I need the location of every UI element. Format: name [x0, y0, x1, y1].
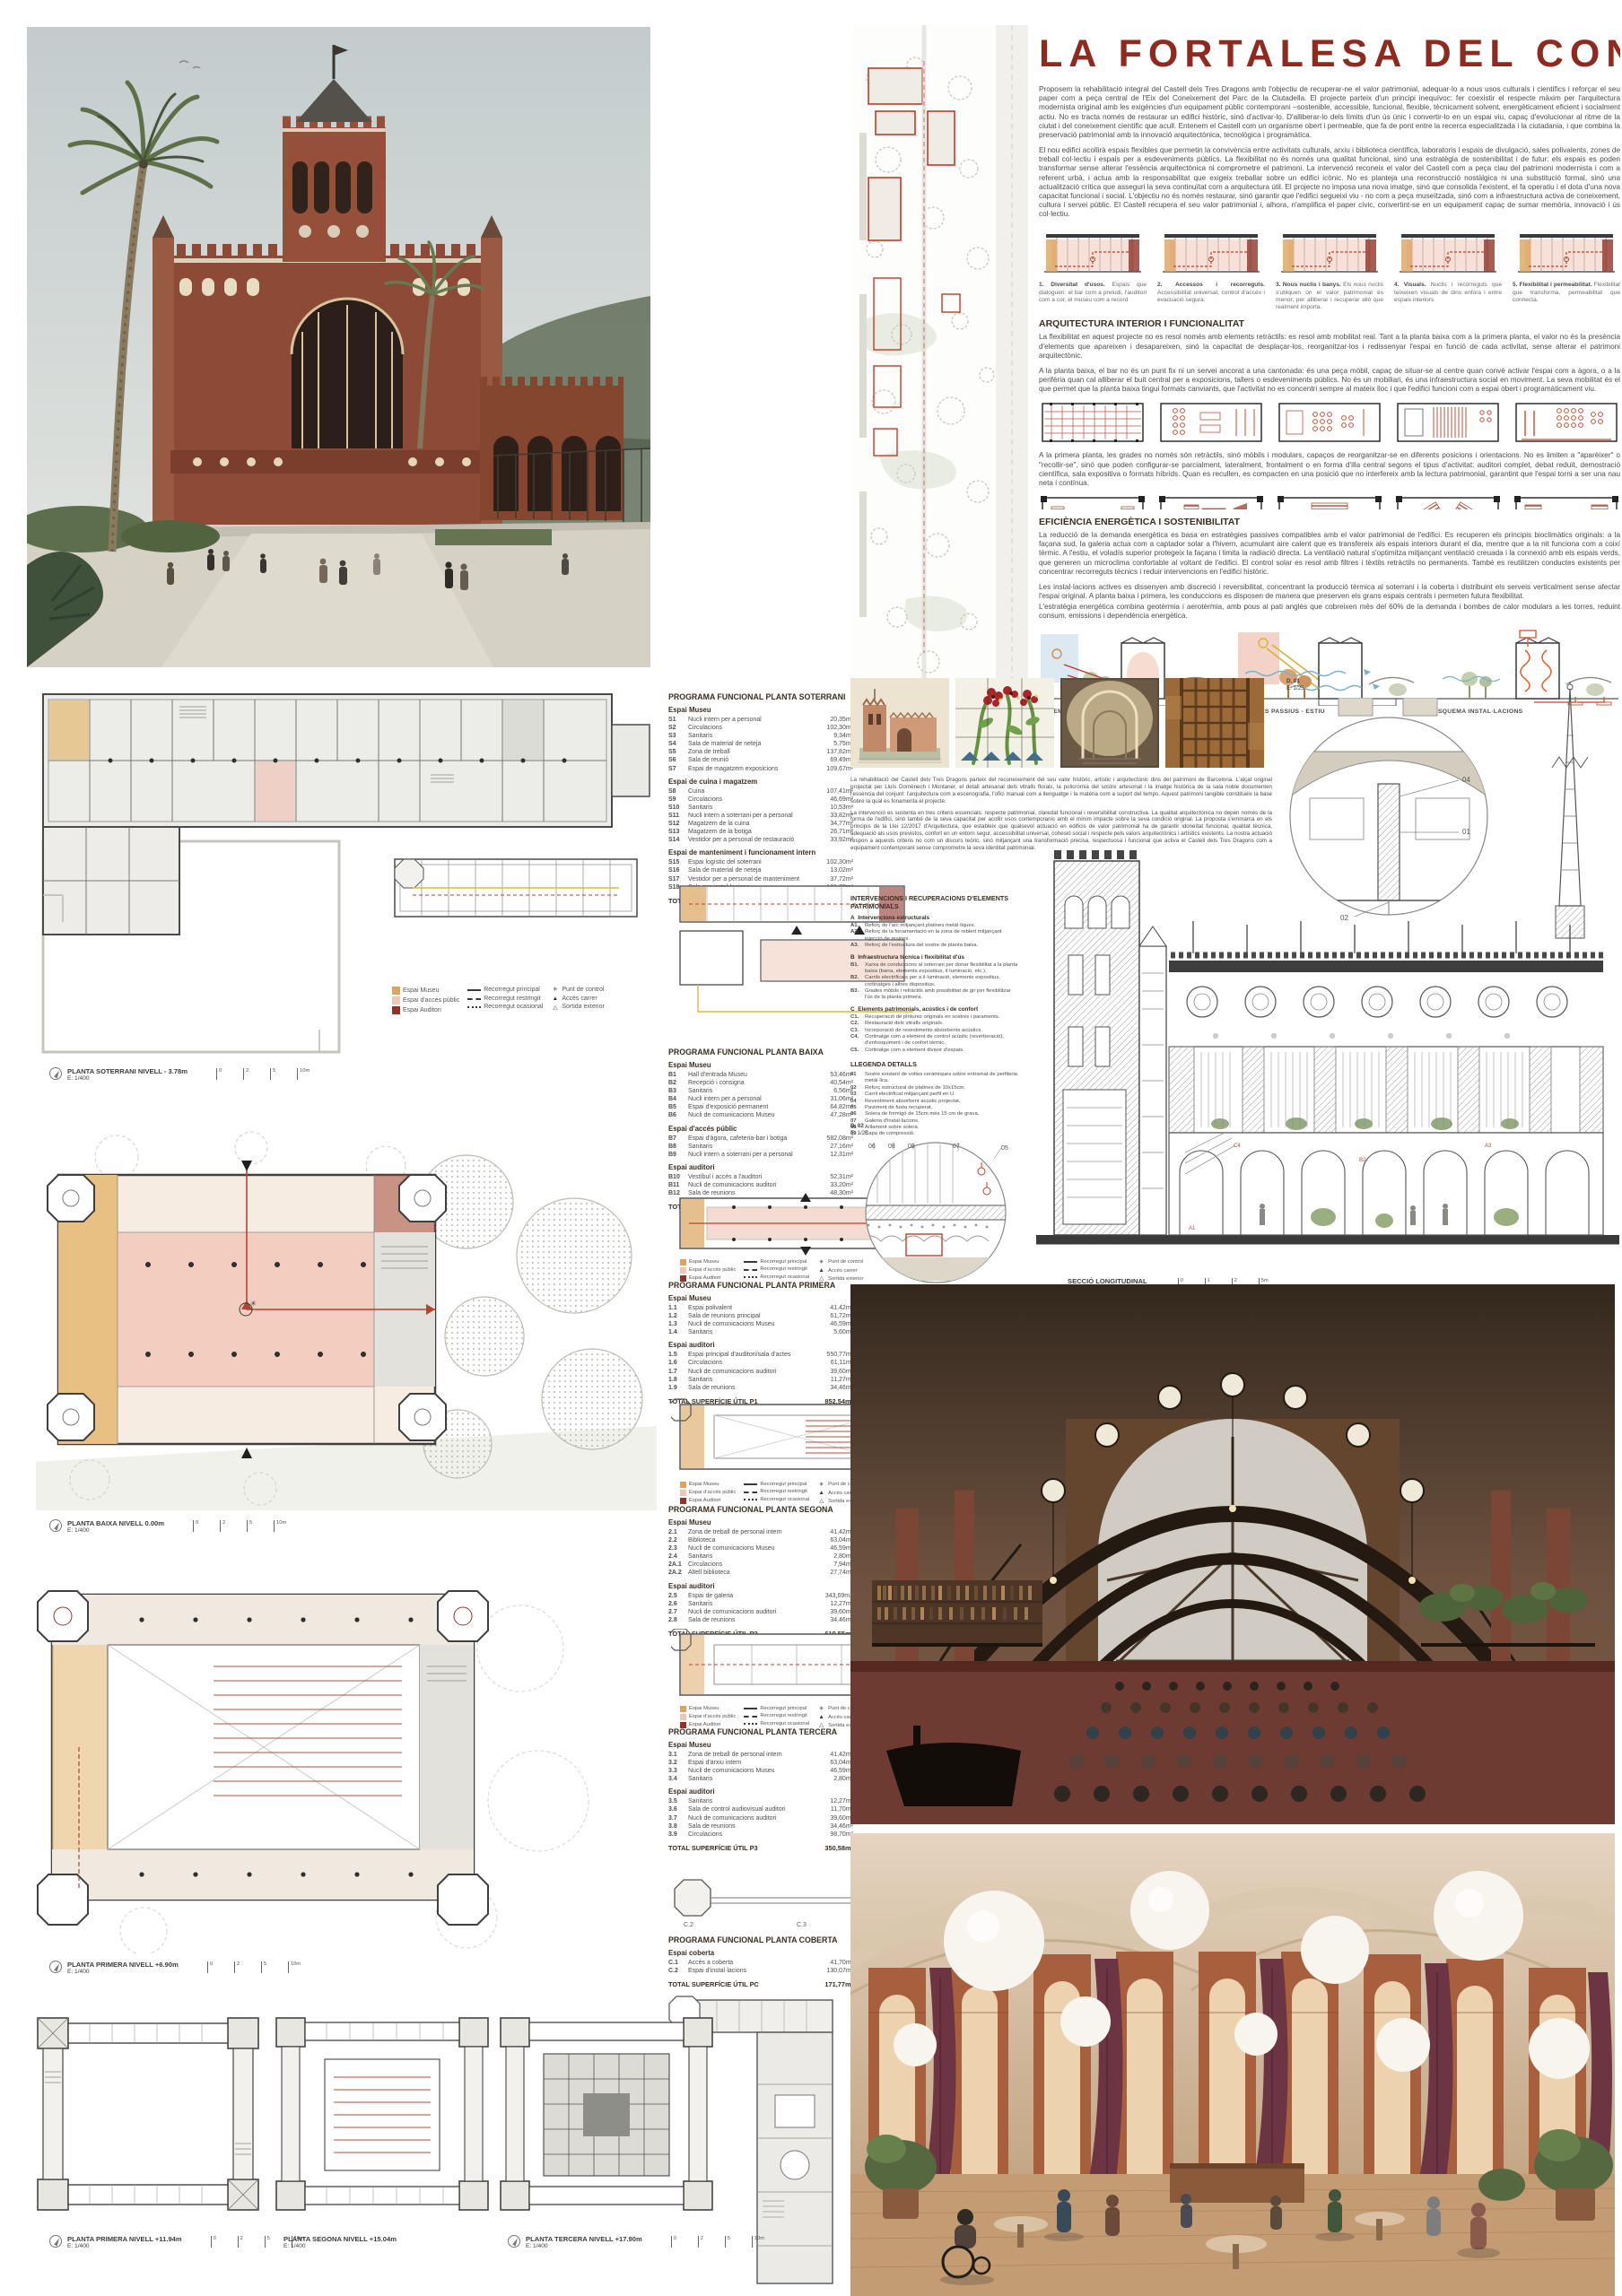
- program-row: 2.3Nucli de comunicacions Museu46,59m²: [668, 1544, 853, 1552]
- section-heading-eficiencia: EFICIÈNCIA ENERGÈTICA I SOSTENIBILITAT: [1039, 517, 1620, 527]
- program-row: 2.5Espai de galeria343,69m2: [668, 1592, 853, 1600]
- arquitectura-paragraph-3: A la primera planta, les grades no només…: [1039, 451, 1620, 488]
- scale-bar: 02510m: [193, 1520, 301, 1532]
- program-row: B1Hall d'entrada Museu53,46m²: [668, 1071, 853, 1079]
- scale-bar: 02510m: [207, 1961, 315, 1973]
- intervencio-item: B2.Carrils electrificats per a il·lumina…: [850, 975, 1019, 988]
- section-sketch-icon: [1157, 225, 1265, 279]
- legend-symbol-item: △Sortida exterior: [551, 1004, 604, 1011]
- legend-space-item: Espai Auditori: [392, 1006, 459, 1014]
- concept-diagrams-row: 1. Diversitat d'usos. Espais que dialogu…: [1039, 225, 1620, 311]
- plan-legend: Espai MuseuEspai d'accés públicEspai Aud…: [680, 1259, 863, 1282]
- svg-text:C.3: C.3: [797, 1922, 807, 1928]
- route-line-icon: [467, 1006, 481, 1008]
- program-row: B10Vestíbul i accés a l'auditori52,31m²: [668, 1173, 853, 1181]
- concept-diagram: 5. Flexibilitat i permeabilitat. Flexibi…: [1513, 225, 1620, 311]
- concept-caption: 3. Nous nuclis i banys. Els nous nuclis …: [1276, 282, 1383, 311]
- program-row: 2A.1Circulacions7,94m²: [668, 1561, 853, 1569]
- interior-render-cafe: [850, 1833, 1615, 2296]
- svg-text:05: 05: [1001, 1145, 1008, 1152]
- detail-d01-label: D. 01E: 1/25: [1286, 678, 1304, 692]
- color-chip: [392, 987, 400, 995]
- program-row: 3.7Nucli de comunicacions auditori39,60m…: [668, 1814, 853, 1822]
- legend-space-item: Espai Museu: [392, 987, 459, 995]
- route-line-icon: [467, 998, 481, 1000]
- legend-route-item: Recorregut restringit: [467, 996, 543, 1003]
- north-arrow-icon: [49, 1067, 62, 1080]
- program-row: 3.2Espai d'arxiu intern63,04m²: [668, 1759, 853, 1767]
- north-arrow-icon: [49, 1961, 62, 1973]
- scale-bar: 02510m: [216, 1068, 324, 1080]
- ground-floor-config-diagrams: [1039, 400, 1620, 445]
- program-row: 1.6Circulacions61,11m²: [668, 1359, 853, 1367]
- program-row: 1.1Espai polivalent41,42m²: [668, 1304, 853, 1312]
- program-row: 1.7Nucli de comunicacions auditori39,60m…: [668, 1368, 853, 1376]
- program-row: 2.8Sala de reunions34,46m²: [668, 1616, 853, 1624]
- plan-label-nivell-1790: PLANTA TERCERA NIVELL +17.90mE: 1/400 02…: [508, 2235, 779, 2249]
- llegenda-item: 01Sostre existent de voltes ceràmiques s…: [850, 1072, 1019, 1085]
- program-row: 1.2Sala de reunions principal61,72m²: [668, 1312, 853, 1320]
- page-title: LA FORTALESA DEL CONEIXEMENT: [1039, 32, 1620, 76]
- concept-caption: 5. Flexibilitat i permeabilitat. Flexibi…: [1513, 282, 1620, 304]
- program-row: 3.5Sanitaris12,27m²: [668, 1797, 853, 1805]
- arquitectura-paragraph-1: La flexibilitat en aquest projecte no es…: [1039, 333, 1620, 361]
- intervencio-item: B1.Xarxa de conduccions al soterrani per…: [850, 962, 1019, 976]
- concept-diagram: 1. Diversitat d'usos. Espais que dialogu…: [1039, 225, 1147, 311]
- program-row: B5Espai d'exposició permanent64,82m²: [668, 1103, 853, 1111]
- program-row: 1.3Nucli de comunicacions Museu46,59m²: [668, 1320, 853, 1328]
- program-row: C.2Espai d'instal·lacions130,07m²: [668, 1967, 853, 1975]
- intervencions-list: INTERVENCIONS I RECUPERACIONS D'ELEMENTS…: [850, 888, 1019, 1138]
- program-row: 2.7Nucli de comunicacions auditori39,60m…: [668, 1608, 853, 1616]
- svg-text:07: 07: [953, 1144, 960, 1150]
- site-plan-drawing: [852, 25, 1028, 684]
- plan-label-nivell-1194: PLANTA PRIMERA NIVELL +11.94mE: 1/400 02…: [49, 2235, 318, 2249]
- legend-symbol-item: ▲Accés carrer: [551, 996, 604, 1003]
- program-row: 2.2Biblioteca63,04m²: [668, 1536, 853, 1544]
- intervencio-item: C1.Recuperació de pintures originals en …: [850, 1014, 1019, 1021]
- concept-diagram: 3. Nous nuclis i banys. Els nous nuclis …: [1276, 225, 1383, 311]
- program-row: 3.3Nucli de comunicacions Museu46,59m²: [668, 1767, 853, 1775]
- color-chip: [392, 1006, 400, 1014]
- intervencio-item: C2.Restauració dels vitralls originals.: [850, 1021, 1019, 1027]
- plan-legend: Espai MuseuEspai d'accés públicEspai Aud…: [680, 1706, 863, 1728]
- plan-primera-drawing: [36, 1568, 592, 1953]
- llegenda-item: 08Aïllament sobre solera.: [850, 1125, 1019, 1131]
- program-row: B6Nucli de comunicacions Museu47,28m²: [668, 1111, 853, 1119]
- svg-text:08: 08: [888, 1144, 895, 1150]
- interior-render-cafe-drawing: [850, 1833, 1615, 2296]
- program-row: S15Espai logístic del soterrani102,30m²: [668, 858, 853, 866]
- program-row: S1Nucli intern per a personal20,35m²: [668, 716, 853, 724]
- north-arrow-icon: [508, 2235, 520, 2248]
- program-table-baixa: PROGRAMA FUNCIONAL PLANTA BAIXA Espai Mu…: [668, 1048, 853, 1211]
- concept-caption: 1. Diversitat d'usos. Espais que dialogu…: [1039, 282, 1147, 304]
- historic-elevation-watercolor: [850, 678, 949, 768]
- svg-text:C.2: C.2: [684, 1922, 693, 1928]
- svg-text:09: 09: [908, 1144, 915, 1150]
- legend-symbol-icon: ✳: [551, 987, 559, 993]
- north-arrow-icon: [49, 1519, 62, 1532]
- llegenda-item: 09Capa de compressió.: [850, 1131, 1019, 1137]
- svg-text:✳: ✳: [250, 1300, 257, 1308]
- llegenda-item: 07Galeria d'instal·lacions.: [850, 1118, 1019, 1125]
- program-row: B8Sanitaris27,16m²: [668, 1143, 853, 1151]
- section-heading-arquitectura: ARQUITECTURA INTERIOR I FUNCIONALITAT: [1039, 318, 1620, 329]
- plan-label-soterrani: PLANTA SOTERRANI NIVELL - 3.78mE: 1/400 …: [49, 1067, 324, 1082]
- plan-legend: Espai MuseuEspai d'accés públicEspai Aud…: [392, 987, 605, 1014]
- program-table-soterrani: PROGRAMA FUNCIONAL PLANTA SOTERRANI Espa…: [668, 692, 853, 905]
- intervencio-item: A3.Reforç de l'estructura del sostre de …: [850, 943, 1019, 949]
- program-table-primera: PROGRAMA FUNCIONAL PLANTA PRIMERA Espai …: [668, 1281, 853, 1405]
- program-row: B11Nucli de comunicacions auditori33,20m…: [668, 1181, 853, 1189]
- program-row: S5Zona de treball137,82m²: [668, 748, 853, 756]
- program-row: S10Sanitaris10,53m²: [668, 804, 853, 812]
- detail-d02-label: D. 02E: 1/25: [850, 1123, 868, 1137]
- program-row: S14Vestidor per a personal de restauraci…: [668, 836, 853, 844]
- program-table-segona: PROGRAMA FUNCIONAL PLANTA SEGONA Espai M…: [668, 1505, 853, 1638]
- plan-label-nivell-1504: PLANTA SEGONA NIVELL +15.04mE: 1/400: [283, 2235, 397, 2249]
- competition-board: LA FORTALESA DEL CONEIXEMENT Proposem la…: [0, 0, 1622, 2296]
- llegenda-item: 05Paviment de fusta recuperat.: [850, 1105, 1019, 1111]
- concept-caption: 2. Accessos i recorreguts. Accessibilita…: [1157, 282, 1265, 304]
- program-row: 2.4Sanitaris2,80m²: [668, 1552, 853, 1561]
- concept-diagram: 4. Visuals. Nuclis i recorreguts que tei…: [1394, 225, 1502, 311]
- plan-label-primera: PLANTA PRIMERA NIVELL +6.90mE: 1/400 025…: [49, 1961, 315, 1975]
- program-row: S7Espai de magatzem exposicions109,67m²: [668, 765, 853, 773]
- program-row: S9Circulacions46,69m²: [668, 796, 853, 804]
- main-text-column: LA FORTALESA DEL CONEIXEMENT Proposem la…: [1039, 32, 1620, 683]
- legend-symbol-icon: △: [551, 1004, 559, 1011]
- program-table-tercera: PROGRAMA FUNCIONAL PLANTA TERCERA Espai …: [668, 1727, 853, 1852]
- color-chip: [392, 996, 400, 1004]
- program-row: 3.4Sanitaris2,80m²: [668, 1775, 853, 1783]
- section-sketch-icon: [1039, 225, 1147, 279]
- legend-space-item: Espai d'accés públic: [392, 996, 459, 1004]
- intervencio-item: A2.Reforç de la fonamentació en la zona …: [850, 929, 1019, 943]
- interior-render-auditorium-drawing: [850, 1284, 1615, 1824]
- program-row: B3Sanitaris6,56m²: [668, 1087, 853, 1095]
- llegenda-item: 02Reforç estructural de platines de 10x1…: [850, 1085, 1019, 1091]
- intro-paragraph-1: Proposem la rehabilitació integral del C…: [1039, 85, 1620, 140]
- north-arrow-icon: [49, 2235, 62, 2248]
- intervencio-item: B3.Grades mòbils i retràctils amb possib…: [850, 988, 1019, 1002]
- plan-nivell-1790: [499, 2000, 714, 2230]
- program-row: 1.5Espai principal d'auditori/sala d'act…: [668, 1351, 853, 1359]
- plan-primera: [36, 1568, 592, 1953]
- program-row: 2A.2Altell biblioteca27,74m²: [668, 1569, 853, 1577]
- eficiencia-paragraph-2: Les instal·lacions actives es dissenyen …: [1039, 583, 1620, 601]
- program-row: 3.8Sala de reunions34,46m²: [668, 1822, 853, 1831]
- program-row: 2.6Sanitaris12,27m²: [668, 1600, 853, 1608]
- program-row: 3.9Circulacions98,70m²: [668, 1831, 853, 1839]
- longitudinal-section: C4B2A3A1: [1036, 812, 1619, 1274]
- interior-render-auditorium: [850, 1284, 1615, 1824]
- program-row: S4Sala de material de neteja5,75m²: [668, 740, 853, 748]
- program-row: S13Magatzem de la botiga26,71m²: [668, 828, 853, 836]
- plan-legend: Espai MuseuEspai d'accés públicEspai Aud…: [680, 1482, 863, 1504]
- program-row: S3Sanitaris9,34m²: [668, 732, 853, 740]
- plan-nivell-1194: [36, 2000, 260, 2230]
- llegenda-item: 04Revestiment absorbent acústic projecta…: [850, 1099, 1019, 1105]
- svg-text:A1: A1: [1189, 1226, 1196, 1231]
- legend-route-item: Recorregut principal: [467, 987, 543, 994]
- auditorium-config-diagrams: [1039, 494, 1620, 509]
- longitudinal-section-drawing: C4B2A3A1: [1036, 812, 1619, 1274]
- intervencio-item: C4.Cortinatge com a element de control a…: [850, 1034, 1019, 1048]
- program-row: B7Espai d'àgora, cafeteria-bar i botiga5…: [668, 1135, 853, 1143]
- coffered-ceiling-photo: [1165, 678, 1264, 768]
- program-row: S8Cuina107,41m²: [668, 787, 853, 796]
- castle-exterior-render-drawing: [27, 27, 650, 667]
- site-plan: [852, 25, 1028, 684]
- plan-baixa-drawing: ✳: [36, 1121, 657, 1510]
- svg-text:B2: B2: [1359, 1158, 1366, 1163]
- route-line-icon: [467, 989, 481, 991]
- section-sketch-icon: [1276, 225, 1383, 279]
- program-row: 1.9Sala de reunions34,46m²: [668, 1384, 853, 1392]
- legend-symbol-icon: ▲: [551, 996, 559, 1002]
- legend-route-item: Recorregut ocasional: [467, 1004, 543, 1011]
- program-row: B4Nucli intern per a personal31,06m²: [668, 1095, 853, 1103]
- intervencio-item: A1.Reforç de l'arc mitjançant platines m…: [850, 923, 1019, 929]
- intervencio-item: C5.Cortinatge com a element divisor d'es…: [850, 1048, 1019, 1054]
- program-row: 2.1Zona de treball de personal intern41,…: [668, 1528, 853, 1536]
- program-row: 1.8Sanitaris11,27m²: [668, 1376, 853, 1384]
- program-row: B2Recepció i consigna40,54m²: [668, 1079, 853, 1087]
- concept-diagram: 2. Accessos i recorreguts. Accessibilita…: [1157, 225, 1265, 311]
- program-row: S2Circulacions102,30m²: [668, 724, 853, 732]
- plan-nivell-1504: [275, 2000, 490, 2230]
- section-sketch-icon: [1394, 225, 1502, 279]
- arquitectura-paragraph-2: A la planta baixa, el bar no és un punt …: [1039, 367, 1620, 395]
- intro-paragraph-2: El nou edifici acollirà espais flexibles…: [1039, 146, 1620, 219]
- program-row: 3.1Zona de treball de personal intern41,…: [668, 1751, 853, 1759]
- llegenda-item: 06Solera de formigó de 15cm més 15 cm de…: [850, 1111, 1019, 1118]
- svg-text:06: 06: [868, 1144, 876, 1150]
- legend-symbol-item: ✳Punt de control: [551, 987, 604, 994]
- detail-d02-drawing: 06 08 09 07 05: [850, 1141, 1021, 1284]
- stained-glass-photo: [955, 678, 1054, 768]
- heritage-photos-row: [850, 678, 1264, 768]
- plan-label-baixa: PLANTA BAIXA NIVELL 0.00mE: 1/400 02510m: [49, 1519, 301, 1534]
- program-row: S6Sala de reunió69,49m²: [668, 756, 853, 764]
- program-row: B9Nucli intern a soterrani per a persona…: [668, 1151, 853, 1159]
- program-row: C.1Accés a coberta41,70m²: [668, 1959, 853, 1967]
- program-table-coberta: PROGRAMA FUNCIONAL PLANTA COBERTA Espai …: [668, 1935, 853, 1988]
- llegenda-item: 03Carril electrificat mitjançant perfil …: [850, 1091, 1019, 1098]
- program-row: 3.6Sala de control audiovisual auditori1…: [668, 1805, 853, 1813]
- eficiencia-paragraph-3: L'estratègia energètica combina geotèrmi…: [1039, 603, 1620, 621]
- plan-baixa: ✳: [36, 1121, 657, 1510]
- historic-interior-photo: [1060, 678, 1159, 768]
- program-row: S16Sala de material de neteja13,02m²: [668, 866, 853, 874]
- concept-caption: 4. Visuals. Nuclis i recorreguts que tei…: [1394, 282, 1502, 304]
- svg-text:A3: A3: [1485, 1144, 1492, 1149]
- eficiencia-paragraph-1: La reducció de la demanda energètica es …: [1039, 531, 1620, 577]
- program-row: S12Magatzem de la cuina34,77m²: [668, 820, 853, 828]
- intervencio-item: C3.Incorporació de revestiments absorben…: [850, 1028, 1019, 1034]
- svg-text:C4: C4: [1234, 1144, 1241, 1149]
- section-sketch-icon: [1513, 225, 1620, 279]
- heritage-paragraph-1: La rehabilitació del Castell dels Tres D…: [850, 777, 1272, 805]
- castle-exterior-render: [27, 27, 650, 667]
- svg-text:04: 04: [1462, 776, 1470, 784]
- program-row: 1.4Sanitaris5,60m²: [668, 1328, 853, 1336]
- scale-bar: 02510m: [671, 2236, 779, 2248]
- program-row: S11Nucli intern a soterrani per a person…: [668, 812, 853, 820]
